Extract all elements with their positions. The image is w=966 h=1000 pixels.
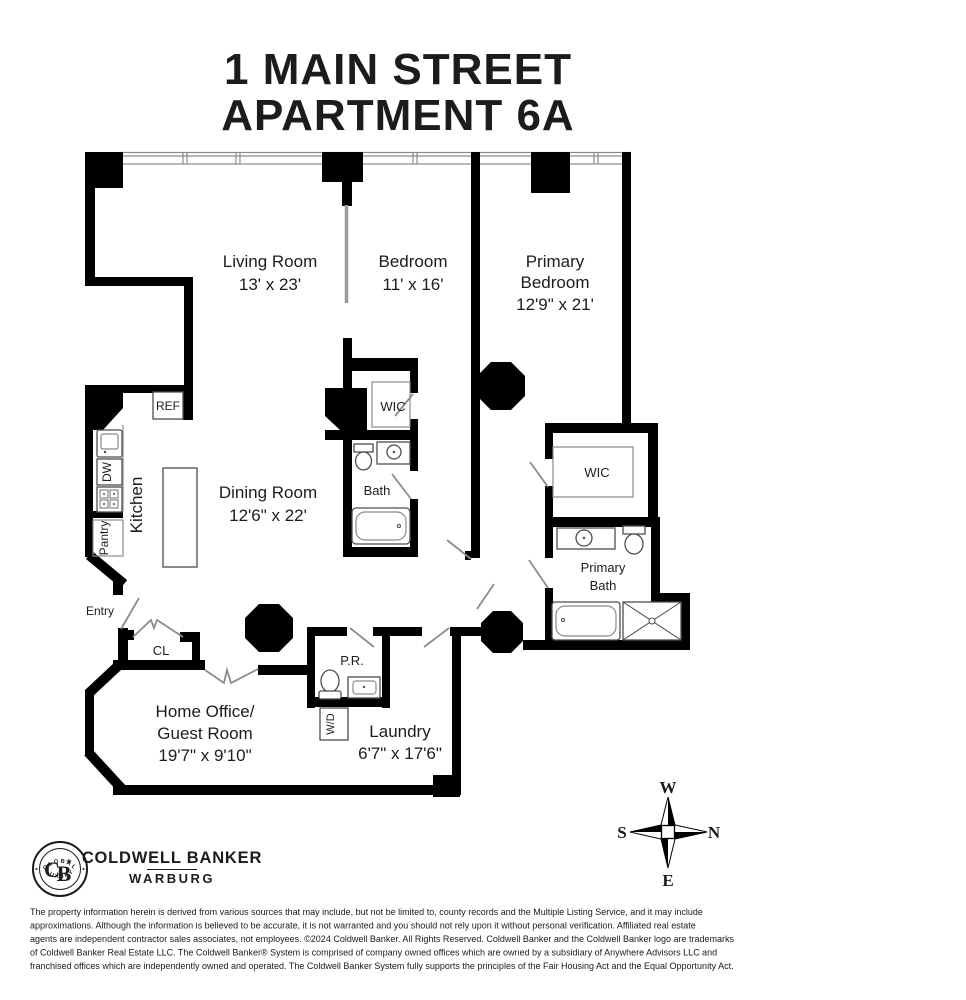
floor-plan-canvas: 1 MAIN STREET APARTMENT 6A [0,0,966,1000]
compass-south: S [617,823,626,842]
label-primary-bedroom: Primary Bedroom 12'9" x 21' [516,252,594,314]
compass-west: W [660,778,677,797]
primary-bedroom-dims: 12'9" x 21' [516,295,594,314]
pantry-label: Pantry [97,521,111,556]
column-octagon-dining [245,604,293,652]
powder-room-label: P.R. [340,653,364,668]
page-title: 1 MAIN STREET APARTMENT 6A [221,45,574,140]
global-luxury-badge: GLOBAL LUXURY C B ★ [33,842,87,896]
title-line-1: 1 MAIN STREET [224,45,572,94]
bath-label: Bath [364,483,391,498]
column-octagon-primary-bedroom [477,362,525,410]
kitchen-label: Kitchen [127,477,146,534]
dining-room-name: Dining Room [219,483,317,502]
entry-door [121,598,139,629]
column-top-middle [322,152,363,182]
wic-primary-label: WIC [584,465,609,480]
disclaimer-line-3: agents are independent contractor sales … [30,934,735,944]
entry-label: Entry [86,604,114,618]
hall-door-leaf-1 [447,540,471,559]
oven [97,430,122,457]
wic-bedroom-label: WIC [380,399,405,414]
compass-rose: W S N E [617,778,721,890]
bath-door [392,474,411,499]
powder-room-door [350,628,374,647]
label-primary-bath: Primary Bath [581,560,626,593]
primary-bath-shower [623,602,681,640]
compass-north: N [708,823,721,842]
primary-bath-toilet [623,526,645,554]
title-line-2: APARTMENT 6A [221,91,574,140]
label-bedroom: Bedroom 11' x 16' [379,252,448,294]
label-living-room: Living Room 13' x 23' [223,252,318,294]
label-dining-room: Dining Room 12'6" x 22' [219,483,317,525]
powder-room-toilet [319,670,341,699]
label-home-office: Home Office/ Guest Room 19'7" x 9'10" [156,702,255,765]
kitchen-island [163,468,197,567]
dining-room-dims: 12'6" x 22' [229,506,307,525]
wic-primary-door [530,462,548,487]
primary-bath-name-2: Bath [590,578,617,593]
home-office-name-1: Home Office/ [156,702,255,721]
laundry-dims: 6'7" x 17'6" [358,744,442,763]
hall-door-leaf-2 [477,584,494,609]
closet-bifold-door [133,620,183,637]
primary-bath-door [529,560,548,588]
compass-center-square [662,826,675,839]
brand-name: COLDWELL BANKER [82,849,262,867]
home-office-dims: 19'7" x 9'10" [158,746,251,765]
coldwell-banker-logo: GLOBAL LUXURY C B ★ COLDWELL BANKER WARB… [33,842,262,896]
badge-star-icon: ★ [65,857,72,866]
primary-bath-name-1: Primary [581,560,626,575]
column-octagon-hall [481,611,523,653]
compass-east: E [662,871,673,890]
laundry-door [424,628,449,647]
living-room-dims: 13' x 23' [239,275,301,294]
disclaimer-line-1: The property information herein is deriv… [30,907,703,917]
column-top-right [531,152,570,193]
living-room-name: Living Room [223,252,318,271]
dishwasher-label: DW [100,461,114,482]
bath-sink [377,442,410,464]
disclaimer-line-2: approximations. Although the information… [30,921,696,931]
closet-label: CL [153,643,170,658]
floor-plan-page: 1 MAIN STREET APARTMENT 6A [0,0,966,1000]
home-office-name-2: Guest Room [157,724,252,743]
home-office-bifold-door [205,669,258,683]
disclaimer-line-5: franchised offices which are independent… [30,961,734,971]
bedroom-dims: 11' x 16' [383,275,444,294]
powder-room-sink [348,677,380,698]
refrigerator-label: REF [156,399,180,413]
primary-bedroom-name-1: Primary [526,252,585,271]
primary-bath-sink [557,528,615,549]
bath-toilet [354,444,373,470]
primary-bedroom-name-2: Bedroom [521,273,590,292]
brand-wordmark: COLDWELL BANKER WARBURG [82,849,262,886]
laundry-name: Laundry [369,722,431,741]
primary-bath-tub [552,602,620,640]
cooktop [97,487,122,512]
label-laundry: Laundry 6'7" x 17'6" [358,722,442,763]
disclaimer-line-4: of Coldwell Banker Real Estate LLC. The … [30,948,717,958]
brand-division: WARBURG [129,871,215,886]
washer-dryer-label: W/D [325,713,337,734]
bedroom-name: Bedroom [379,252,448,271]
bath-tub [352,508,410,544]
legal-disclaimer: The property information herein is deriv… [30,907,735,971]
